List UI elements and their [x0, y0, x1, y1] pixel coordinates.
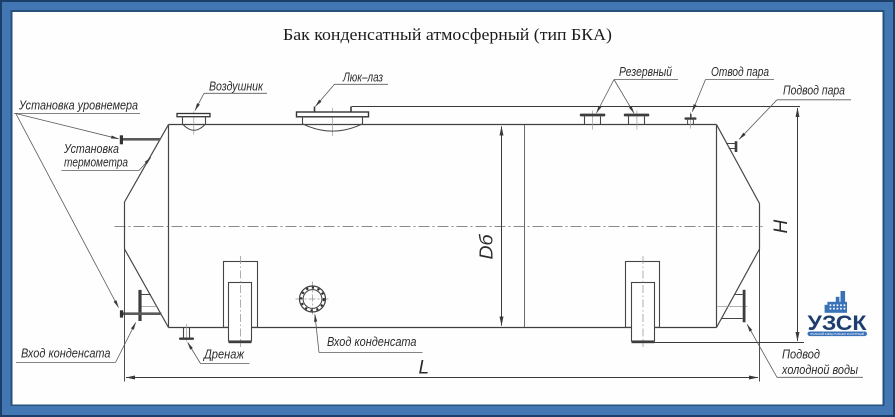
svg-text:Вход конденсата: Вход конденсата	[21, 346, 111, 361]
svg-text:холодной воды: холодной воды	[781, 362, 858, 377]
svg-text:Бак конденсатный атмосферный (: Бак конденсатный атмосферный (тип БКА)	[283, 25, 612, 44]
svg-text:Вход конденсата: Вход конденсата	[327, 334, 417, 349]
svg-text:УРАЛЬСКИЙ ЗАВОД СТАЛЬНЫХ КОНСТ: УРАЛЬСКИЙ ЗАВОД СТАЛЬНЫХ КОНСТРУКЦИЙ	[810, 332, 864, 336]
svg-text:термометра: термометра	[64, 155, 128, 170]
svg-text:Установка уровнемера: Установка уровнемера	[18, 98, 138, 113]
svg-text:Воздушник: Воздушник	[209, 79, 264, 94]
svg-text:Подвод пара: Подвод пара	[783, 83, 845, 98]
svg-text:H: H	[771, 220, 792, 234]
svg-text:Люк–лаз: Люк–лаз	[342, 70, 383, 85]
svg-text:Резервный: Резервный	[619, 64, 672, 79]
svg-text:L: L	[419, 358, 430, 379]
svg-text:Dб: Dб	[477, 234, 497, 260]
svg-text:Дренаж: Дренаж	[202, 347, 245, 362]
svg-text:Отвод пара: Отвод пара	[711, 64, 769, 79]
svg-text:Подвод: Подвод	[782, 347, 820, 362]
